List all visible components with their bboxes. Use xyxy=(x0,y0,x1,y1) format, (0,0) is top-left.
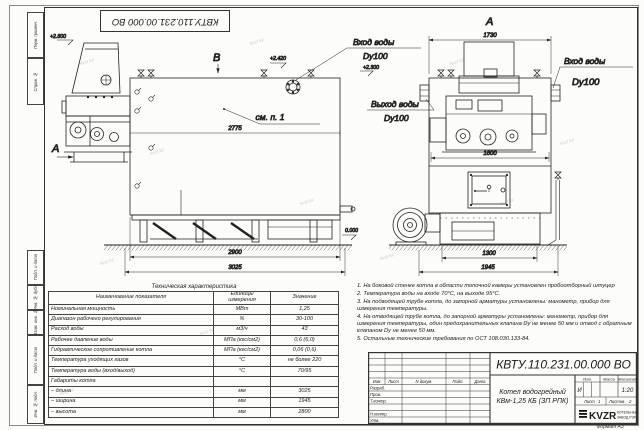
tb-sheet-label: Лист xyxy=(583,399,595,404)
tb-sheets-value: 2 xyxy=(628,399,632,404)
tb-lit-value: И xyxy=(577,388,582,394)
dim-2775: 2775 xyxy=(227,126,242,132)
front-view-title: А xyxy=(485,16,493,28)
margin-label: Подп. и дата xyxy=(33,254,38,280)
tech-col-value: Значение xyxy=(271,292,339,305)
table-row: Температура уходящих газов°Сне более 220 xyxy=(49,356,339,366)
margin-label: Перв. примен. xyxy=(33,21,38,49)
company-logo: KVZR xyxy=(589,411,617,422)
margin-cell-perv-primen: Перв. примен. xyxy=(27,12,44,58)
tb-sheets-label: Листов xyxy=(608,399,625,404)
elevation-2800: +2.800 xyxy=(50,34,66,40)
company-line2: ЗАВОД РЭП xyxy=(617,416,637,420)
product-name-line1: Котел водогрейный xyxy=(499,388,566,396)
tech-col-units: Единицыизмерения xyxy=(214,292,271,305)
tb-row-nkontr: Н.контр. xyxy=(370,412,388,417)
water-inlet-label-right: Вход воды xyxy=(564,56,606,66)
note-1: 1. На боковой стенке котла в области топ… xyxy=(357,283,638,290)
tb-scale-value: 1:20 xyxy=(622,388,634,394)
tech-table-title: Техническая характеристика xyxy=(48,284,340,290)
tb-col-data: Дата xyxy=(473,379,486,384)
margin-label: Справ. № xyxy=(33,72,38,92)
dim-1945: 1945 xyxy=(481,265,495,271)
tb-col-podp: Подп. xyxy=(452,379,463,384)
margin-cell-sprav-no: Справ. № xyxy=(27,58,44,105)
dim-1600: 1600 xyxy=(483,151,497,157)
dim-2900: 2900 xyxy=(227,250,242,256)
tb-mass-label: Масса xyxy=(603,376,616,381)
format-note: Формат А3 xyxy=(580,424,640,430)
water-outlet-dn: Dy100 xyxy=(384,113,409,123)
titleblock-doc-number: КВТУ.110.231.00.000 ВО xyxy=(496,358,631,372)
tb-col-izm: Изм xyxy=(373,379,381,384)
table-row: – ширинамм1945 xyxy=(49,397,339,407)
see-note-callout: см. п. 1 xyxy=(256,112,285,122)
tb-row-tkontr: Т.контр. xyxy=(370,399,387,404)
tech-col-name: Наименование показателя xyxy=(49,292,214,305)
elevation-2420: +2.420 xyxy=(270,56,286,62)
tb-col-list: Лист xyxy=(387,379,399,384)
dim-1300: 1300 xyxy=(482,251,496,257)
note-3: 3. На подводящей трубе котла, до запорно… xyxy=(357,299,638,313)
margin-label: Инв. № дубл. xyxy=(33,284,38,310)
table-row: Температура воды (вход/выход)°С70/95 xyxy=(49,366,339,376)
titleblock: КВТУ.110.231.00.000 ВО Котел водогрейный… xyxy=(368,352,637,424)
notes: 1. На боковой стенке котла в области топ… xyxy=(357,283,638,344)
tb-sheet-value: 1 xyxy=(598,399,600,404)
tb-col-ndokum: N докум. xyxy=(416,379,433,384)
margin-label: Подп. и дата xyxy=(33,347,38,373)
tb-row-prov: Пров. xyxy=(370,392,381,397)
water-outlet-label: Выход воды xyxy=(371,99,420,109)
margin-cell-inv-dubl: Инв. № дубл. xyxy=(27,285,44,310)
dim-1730: 1730 xyxy=(483,33,497,39)
tech-table: Техническая характеристика Наименование … xyxy=(48,284,340,418)
note-5: 5. Остальные технические требования по О… xyxy=(357,336,638,343)
section-label-a: А xyxy=(51,143,59,155)
company-line1: КОТЕЛЬНЫЙ xyxy=(617,411,637,415)
tb-lit-label: Лит. xyxy=(582,376,592,381)
water-inlet-dn-side: Dy100 xyxy=(363,51,388,61)
table-row: Габариты котла xyxy=(49,377,339,387)
inlet-elevation-2300: +2.300 xyxy=(363,65,379,71)
margin-cell-vzam-inv: Взам. инв. № xyxy=(27,310,44,335)
margin-label: Инв. № подл. xyxy=(33,391,38,417)
margin-cell-podp-data-1: Подп. и дата xyxy=(27,250,44,285)
view-label-b: В xyxy=(213,52,220,64)
note-4: 4. На отводящей трубе котла, до запорной… xyxy=(357,314,638,335)
margin-cell-podp-data-2: Подп. и дата xyxy=(27,335,44,385)
margin-label: Взам. инв. № xyxy=(33,309,38,335)
table-row: Гидравлическое сопротивление котлаМПа (к… xyxy=(49,346,339,356)
front-view: А 1730 1600 1300 1945 Вход воды Dy100 +2… xyxy=(296,16,633,276)
table-row: Расход водым3/ч43 xyxy=(49,325,339,335)
product-name-line2: КВм-1,25 КБ (ЗП РПК) xyxy=(497,398,569,405)
table-row: Рабочее давление водыМПа (кгс/см2)0,6 (6… xyxy=(49,335,339,345)
note-2: 2. Температура воды на входе 70°С, на вы… xyxy=(357,291,638,298)
table-row: Номинальная мощностьМВт1,25 xyxy=(49,305,339,315)
tb-scale-label: Масштаб xyxy=(618,376,637,381)
dim-3025: 3025 xyxy=(228,265,242,271)
table-row: – длинамм3025 xyxy=(49,387,339,397)
elevation-0000: 0.000 xyxy=(345,228,358,234)
water-inlet-dn-right: Dy100 xyxy=(572,77,600,88)
table-row: – высотамм2800 xyxy=(49,407,339,417)
tb-row-razrab: Разраб. xyxy=(370,386,385,391)
table-row: Диапазон рабочего регулирования%30-100 xyxy=(49,315,339,325)
drawing-sheet: kvzr.kz kvzr.kz kvzr.kz kvzr.kz kvzr.kz … xyxy=(0,0,644,430)
water-inlet-label-side: Вход воды xyxy=(353,37,395,47)
margin-cell-inv-podl: Инв. № подл. xyxy=(27,385,44,424)
tb-row-utv: Утв. xyxy=(370,418,380,423)
